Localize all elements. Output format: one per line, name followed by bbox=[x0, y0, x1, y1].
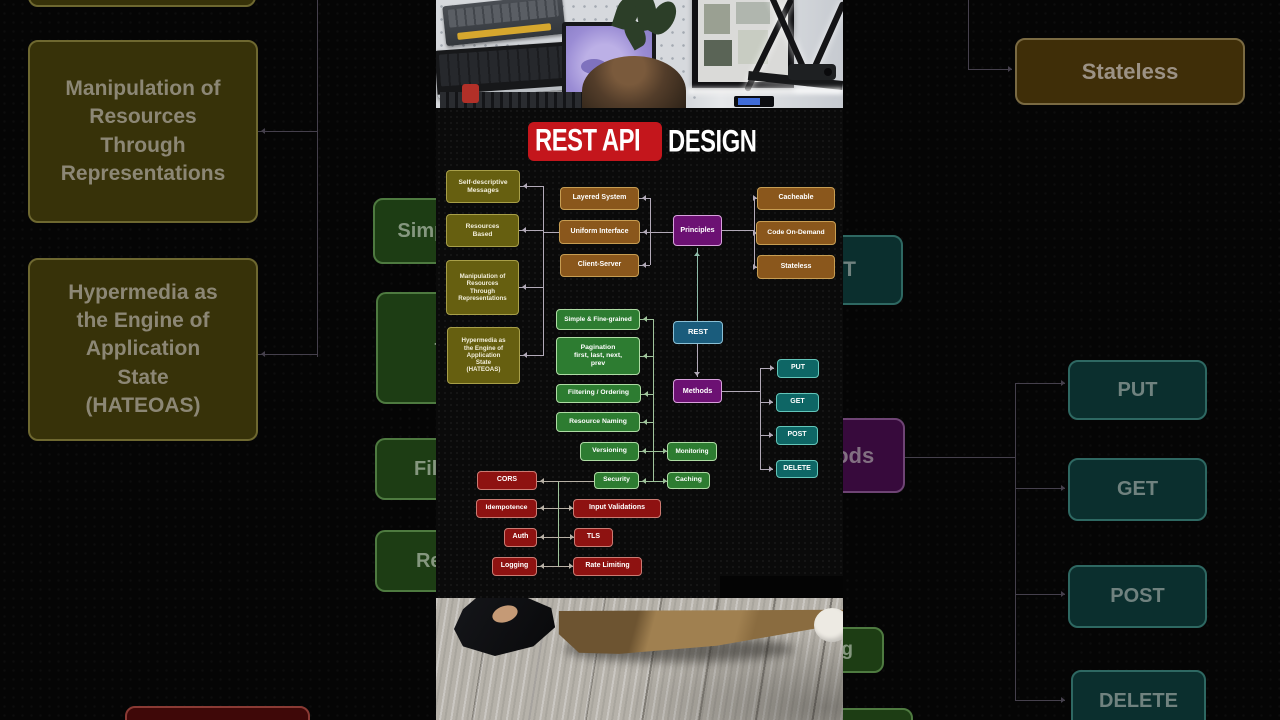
delete-node: DELETE bbox=[776, 460, 818, 478]
bg-resource-naming-node: Resource Naming bbox=[375, 530, 436, 592]
bg-post-node: POST bbox=[1068, 565, 1207, 628]
white-disc bbox=[814, 608, 843, 642]
page-title: REST API DESIGN bbox=[528, 122, 768, 161]
title-badge-text: REST API bbox=[535, 122, 640, 159]
bg-get-node: GET bbox=[1068, 458, 1207, 521]
bg-green-corner-node bbox=[843, 708, 913, 720]
input-validations-node: Input Validations bbox=[573, 499, 661, 518]
tls-node: TLS bbox=[574, 528, 613, 547]
wall-scene bbox=[436, 0, 843, 108]
bg-methods-node: Methods bbox=[843, 418, 905, 493]
monitoring-node: Monitoring bbox=[667, 442, 717, 461]
title-suffix-text: DESIGN bbox=[668, 123, 756, 160]
plant bbox=[612, 0, 678, 60]
pagination-node: Pagination first, last, next, prev bbox=[556, 337, 640, 375]
bg-resources-based-edge-node bbox=[28, 0, 256, 7]
caching-node: Caching bbox=[667, 472, 710, 489]
bg-delete-node: DELETE bbox=[1071, 670, 1206, 720]
logging-node: Logging bbox=[492, 557, 537, 576]
filtering-ordering-node: Filtering / Ordering bbox=[556, 384, 641, 403]
methods-node: Methods bbox=[673, 379, 722, 403]
client-server-node: Client-Server bbox=[560, 254, 639, 277]
background-left-panel: Manipulation of Resources Through Repres… bbox=[0, 0, 436, 720]
put-node: PUT bbox=[777, 359, 819, 378]
get-node: GET bbox=[776, 393, 819, 412]
cacheable-node: Cacheable bbox=[757, 187, 835, 210]
manipulation-of-resources-node: Manipulation of Resources Through Repres… bbox=[446, 260, 519, 315]
layered-system-node: Layered System bbox=[560, 187, 639, 210]
wall-keyboard-bottom bbox=[436, 41, 576, 99]
security-node: Security bbox=[594, 472, 639, 489]
bg-stateless-node: Stateless bbox=[1015, 38, 1245, 105]
cors-node: CORS bbox=[477, 471, 537, 490]
versioning-node: Versioning bbox=[580, 442, 639, 461]
resource-naming-node: Resource Naming bbox=[556, 412, 640, 432]
stateless-node: Stateless bbox=[757, 255, 835, 279]
floor-scene bbox=[436, 598, 843, 720]
post-node: POST bbox=[776, 426, 818, 445]
background-right-panel: StatelessRESTMethodsPUTGETPOSTDELETECach… bbox=[843, 0, 1280, 720]
idempotence-node: Idempotence bbox=[476, 499, 537, 518]
diagram-panel: REST API DESIGN Self-descriptive Message… bbox=[436, 108, 843, 598]
simple-fine-grained-node: Simple & Fine-grained bbox=[556, 309, 640, 330]
bg-pagination-node: Pagination first, last, next, prev bbox=[376, 292, 436, 404]
bg-cors-node: CORS bbox=[125, 706, 310, 720]
code-on-demand-node: Code On-Demand bbox=[756, 221, 836, 245]
webcam bbox=[788, 64, 836, 80]
desk-display bbox=[734, 96, 774, 107]
bg-filtering-ordering-node: Filtering / Ordering bbox=[375, 438, 436, 500]
bg-hateoas-node: Hypermedia as the Engine of Application … bbox=[28, 258, 258, 441]
title-badge: REST API bbox=[528, 122, 662, 161]
led-strip bbox=[688, 88, 843, 94]
self-descriptive-messages-node: Self-descriptive Messages bbox=[446, 170, 520, 203]
video-frame: Manipulation of Resources Through Repres… bbox=[0, 0, 1280, 720]
auth-node: Auth bbox=[504, 528, 537, 547]
resources-based-node: Resources Based bbox=[446, 214, 519, 247]
uniform-interface-node: Uniform Interface bbox=[559, 220, 640, 244]
bg-caching-node: Caching bbox=[843, 627, 884, 673]
bg-put-node: PUT bbox=[1068, 360, 1207, 420]
desk-red-item bbox=[462, 84, 479, 103]
principles-node: Principles bbox=[673, 215, 722, 246]
hateoas-node: Hypermedia as the Engine of Application … bbox=[447, 327, 520, 384]
rate-limiting-node: Rate Limiting bbox=[573, 557, 642, 576]
bg-rest-node: REST bbox=[843, 235, 903, 305]
bg-simple-fine-grained-node: Simple & Fine-grained bbox=[373, 198, 436, 264]
bg-manipulation-node: Manipulation of Resources Through Repres… bbox=[28, 40, 258, 223]
video-column: REST API DESIGN Self-descriptive Message… bbox=[436, 0, 843, 720]
rest-node: REST bbox=[673, 321, 723, 344]
